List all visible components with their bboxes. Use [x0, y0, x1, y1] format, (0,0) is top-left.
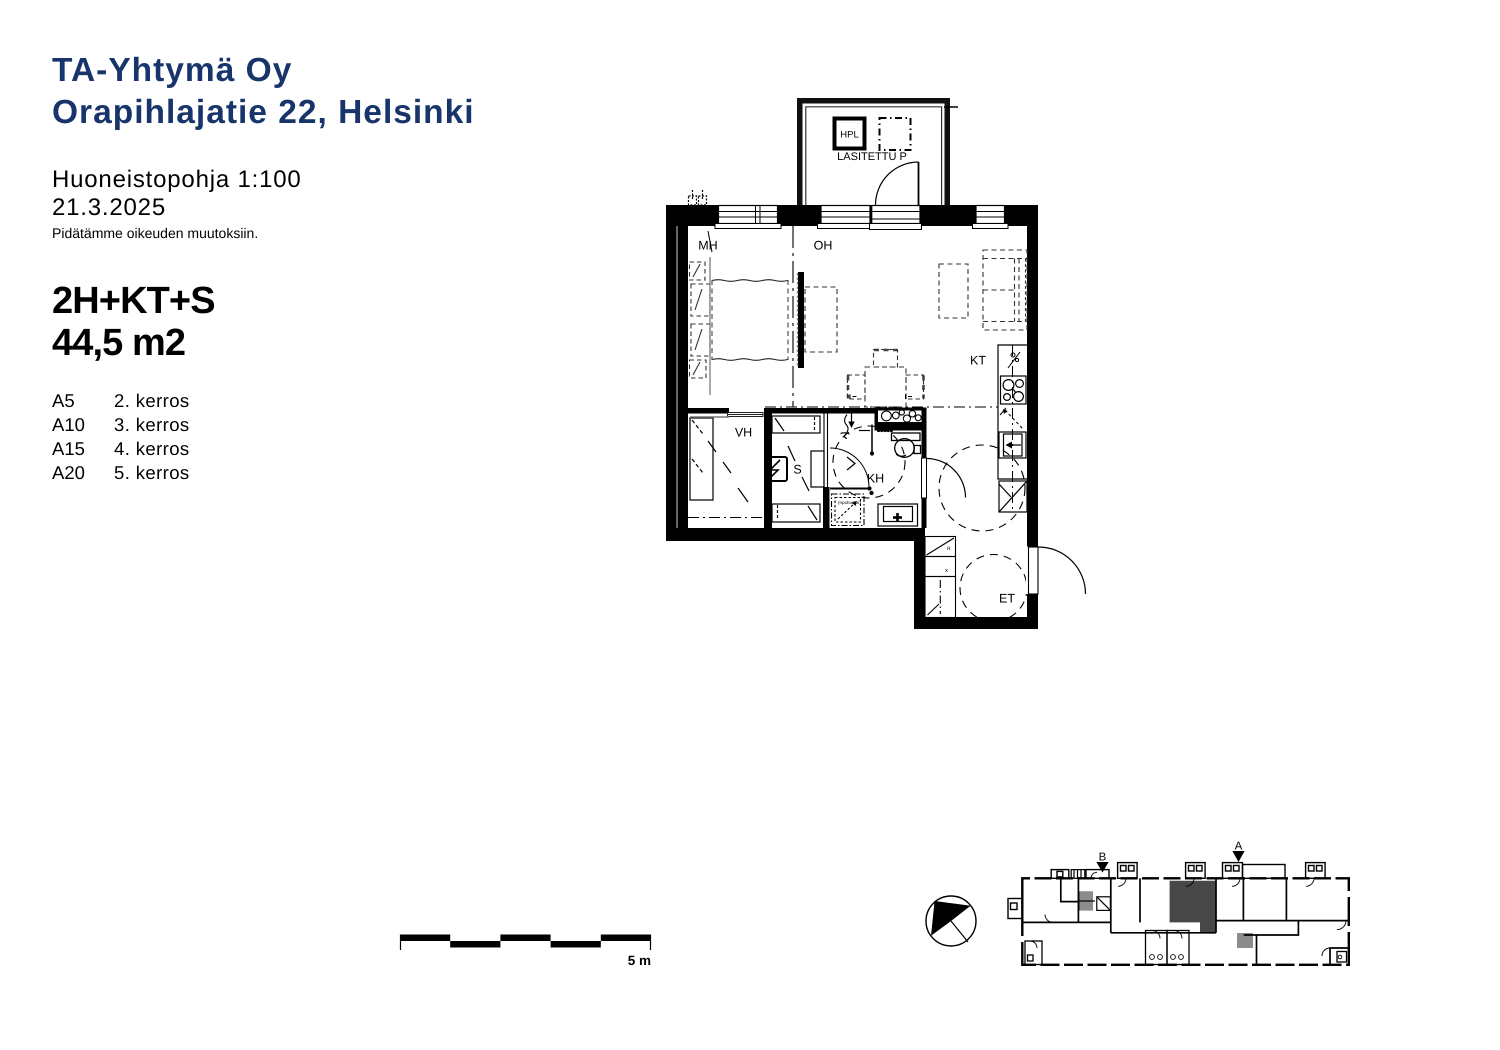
svg-text:KT: KT [970, 354, 986, 368]
svg-text:MH: MH [698, 239, 717, 253]
svg-text:HPL: HPL [840, 130, 858, 141]
svg-text:LASITETTU P: LASITETTU P [837, 151, 907, 163]
svg-text:ET: ET [999, 592, 1015, 606]
svg-text:(npohuolto): (npohuolto) [838, 500, 861, 505]
svg-text:B: B [1099, 852, 1107, 864]
svg-text:OH: OH [814, 239, 833, 253]
svg-text:R: R [947, 546, 951, 552]
svg-text:VH: VH [735, 426, 752, 440]
svg-text:S: S [793, 463, 801, 477]
svg-text:5 m: 5 m [628, 953, 651, 968]
svg-text:KH: KH [867, 472, 884, 486]
svg-text:A: A [1235, 841, 1243, 853]
svg-text:x: x [945, 568, 948, 574]
